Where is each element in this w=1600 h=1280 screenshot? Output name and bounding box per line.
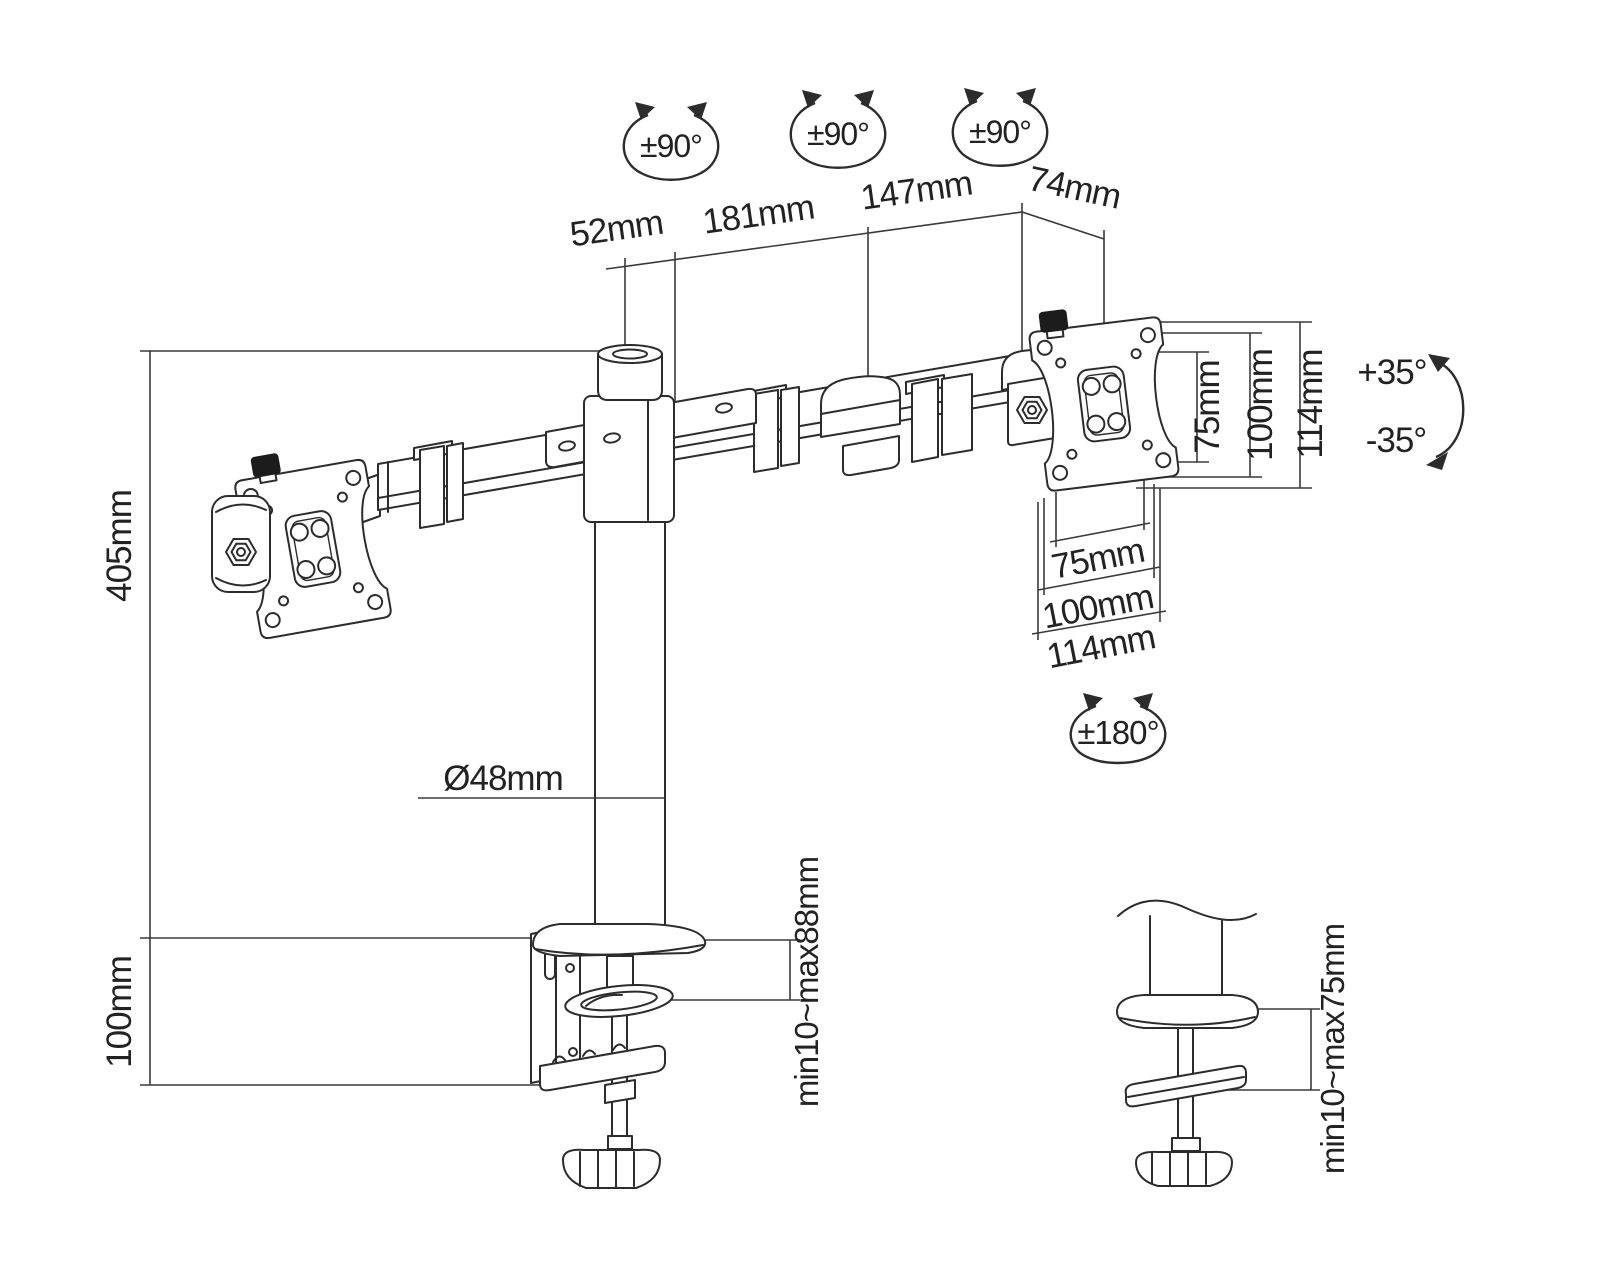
clamp-knob	[563, 1150, 660, 1188]
dim-label-52mm: 52mm	[568, 203, 666, 255]
pan-rotation-label: ±180°	[1077, 714, 1158, 751]
right-vesa-plate	[1027, 299, 1180, 492]
clamp-range-label: min10~max88mm	[788, 857, 825, 1107]
diagram-canvas: 52mm 181mm 147mm 74mm ±90° ±90° ±90° ±18…	[0, 0, 1600, 1280]
dim-label-74mm: 74mm	[1025, 159, 1124, 217]
center-pole	[595, 500, 665, 932]
pole-diameter-label: Ø48mm	[443, 759, 562, 798]
pole-height-label: 405mm	[100, 490, 139, 602]
desk-clamp	[531, 924, 705, 1188]
middle-joint-clamp	[821, 376, 900, 475]
swivel-left-label: ±90°	[640, 128, 702, 164]
diagram-page: 52mm 181mm 147mm 74mm ±90° ±90° ±90° ±18…	[0, 0, 1600, 1280]
base-height-label: 100mm	[100, 956, 139, 1068]
vesa-v-100-label: 100mm	[1241, 349, 1280, 461]
vesa-v-114-label: 114mm	[1291, 349, 1330, 458]
left-pivot-housing	[212, 496, 270, 592]
dim-label-181mm: 181mm	[700, 188, 816, 242]
tilt-arrow-icon	[1426, 354, 1463, 470]
tilt-down-label: -35°	[1366, 421, 1427, 460]
swivel-right-label: ±90°	[969, 114, 1031, 150]
grommet-mount-detail	[1117, 901, 1258, 1186]
dim-label-147mm: 147mm	[858, 164, 974, 218]
grommet-top-disc	[1117, 995, 1258, 1028]
tilt-up-label: +35°	[1357, 353, 1426, 392]
vesa-v-75-label: 75mm	[1188, 360, 1227, 453]
grommet-range-label: min10~max75mm	[1314, 924, 1351, 1174]
pole-top-cap	[598, 345, 662, 400]
right-pivot-bolt	[1017, 397, 1047, 423]
swivel-middle-label: ±90°	[807, 116, 869, 152]
clamp-top-plate	[533, 924, 705, 956]
grommet-knob	[1136, 1152, 1232, 1186]
